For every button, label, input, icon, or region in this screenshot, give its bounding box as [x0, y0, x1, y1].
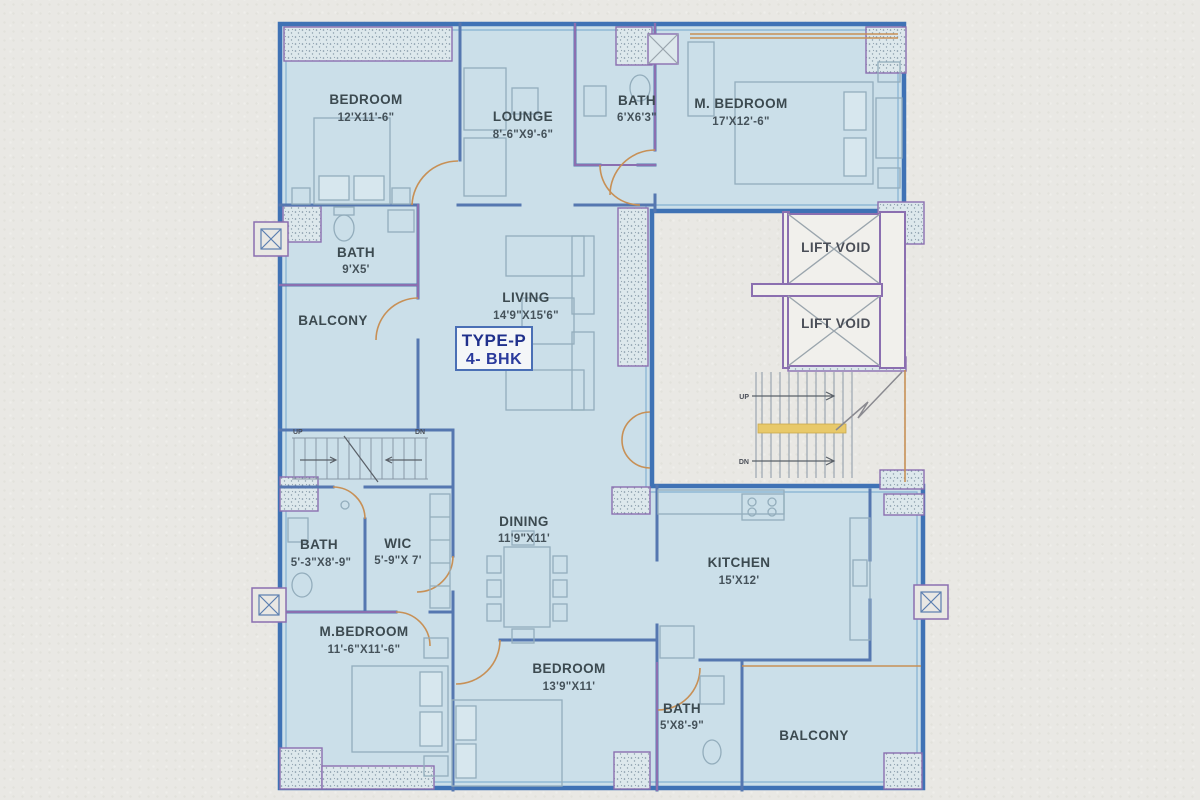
lift-void-label-1: LIFT VOID [801, 240, 871, 255]
stair-dn-label: DN [739, 459, 749, 466]
room-label-balcony-2: BALCONY [779, 728, 849, 743]
room-label-master-bedroom-2: M.BEDROOM [319, 624, 408, 639]
room-dims-dining: 11'9"X11' [498, 533, 550, 545]
stair-dn-label-2: DN [415, 429, 425, 436]
room-label-lounge: LOUNGE [493, 109, 553, 124]
room-dims-bath-4: 5'X8'-9" [660, 720, 704, 732]
room-label-bath-1: BATH [618, 93, 656, 108]
wall-anchor-symbol [252, 588, 286, 622]
room-label-bath-3: BATH [300, 537, 338, 552]
staircase-main: UP DN [739, 370, 905, 482]
stair-up-label-2: UP [293, 429, 303, 436]
lift-shafts [752, 212, 905, 368]
wall-anchor-symbol [914, 585, 948, 619]
room-dims-bath-2: 9'X5' [342, 264, 369, 276]
room-dims-bedroom-2: 13'9"X11' [543, 681, 596, 693]
room-dims-kitchen: 15'X12' [719, 575, 760, 587]
unit-type-label: TYPE-P [462, 331, 526, 350]
stair-landing [758, 424, 846, 433]
room-label-bedroom-2: BEDROOM [532, 661, 605, 676]
room-dims-master-bedroom-1: 17'X12'-6" [712, 116, 769, 128]
stair-break-line [836, 372, 902, 430]
room-label-living: LIVING [502, 290, 549, 305]
room-label-bath-2: BATH [337, 245, 375, 260]
room-dims-bath-3: 5'-3"X8'-9" [291, 557, 352, 569]
room-label-bath-4: BATH [663, 701, 701, 716]
room-dims-master-bedroom-2: 11'-6"X11'-6" [328, 644, 401, 656]
room-label-balcony-1: BALCONY [298, 313, 368, 328]
room-dims-bath-1: 6'X6'3" [617, 112, 657, 124]
unit-bhk-label: 4- BHK [466, 351, 522, 368]
floor-plan-canvas: UP DN UP DN [0, 0, 1200, 800]
floor-plan-svg: UP DN UP DN [0, 0, 1200, 800]
shaft-symbol [648, 34, 678, 64]
room-label-master-bedroom-1: M. BEDROOM [694, 96, 787, 111]
stair-up-label: UP [739, 394, 749, 401]
room-label-wic: WIC [384, 536, 411, 551]
room-dims-wic: 5'-9"X 7' [374, 555, 422, 567]
room-dims-bedroom-1: 12'X11'-6" [338, 112, 395, 124]
room-dims-lounge: 8'-6"X9'-6" [493, 129, 554, 141]
room-label-bedroom-1: BEDROOM [329, 92, 402, 107]
room-label-kitchen: KITCHEN [708, 555, 771, 570]
wall-anchor-symbol [254, 222, 288, 256]
room-label-dining: DINING [499, 514, 549, 529]
lift-void-label-2: LIFT VOID [801, 316, 871, 331]
room-dims-living: 14'9"X15'6" [493, 310, 559, 322]
unit-type-box: TYPE-P 4- BHK [456, 327, 532, 370]
